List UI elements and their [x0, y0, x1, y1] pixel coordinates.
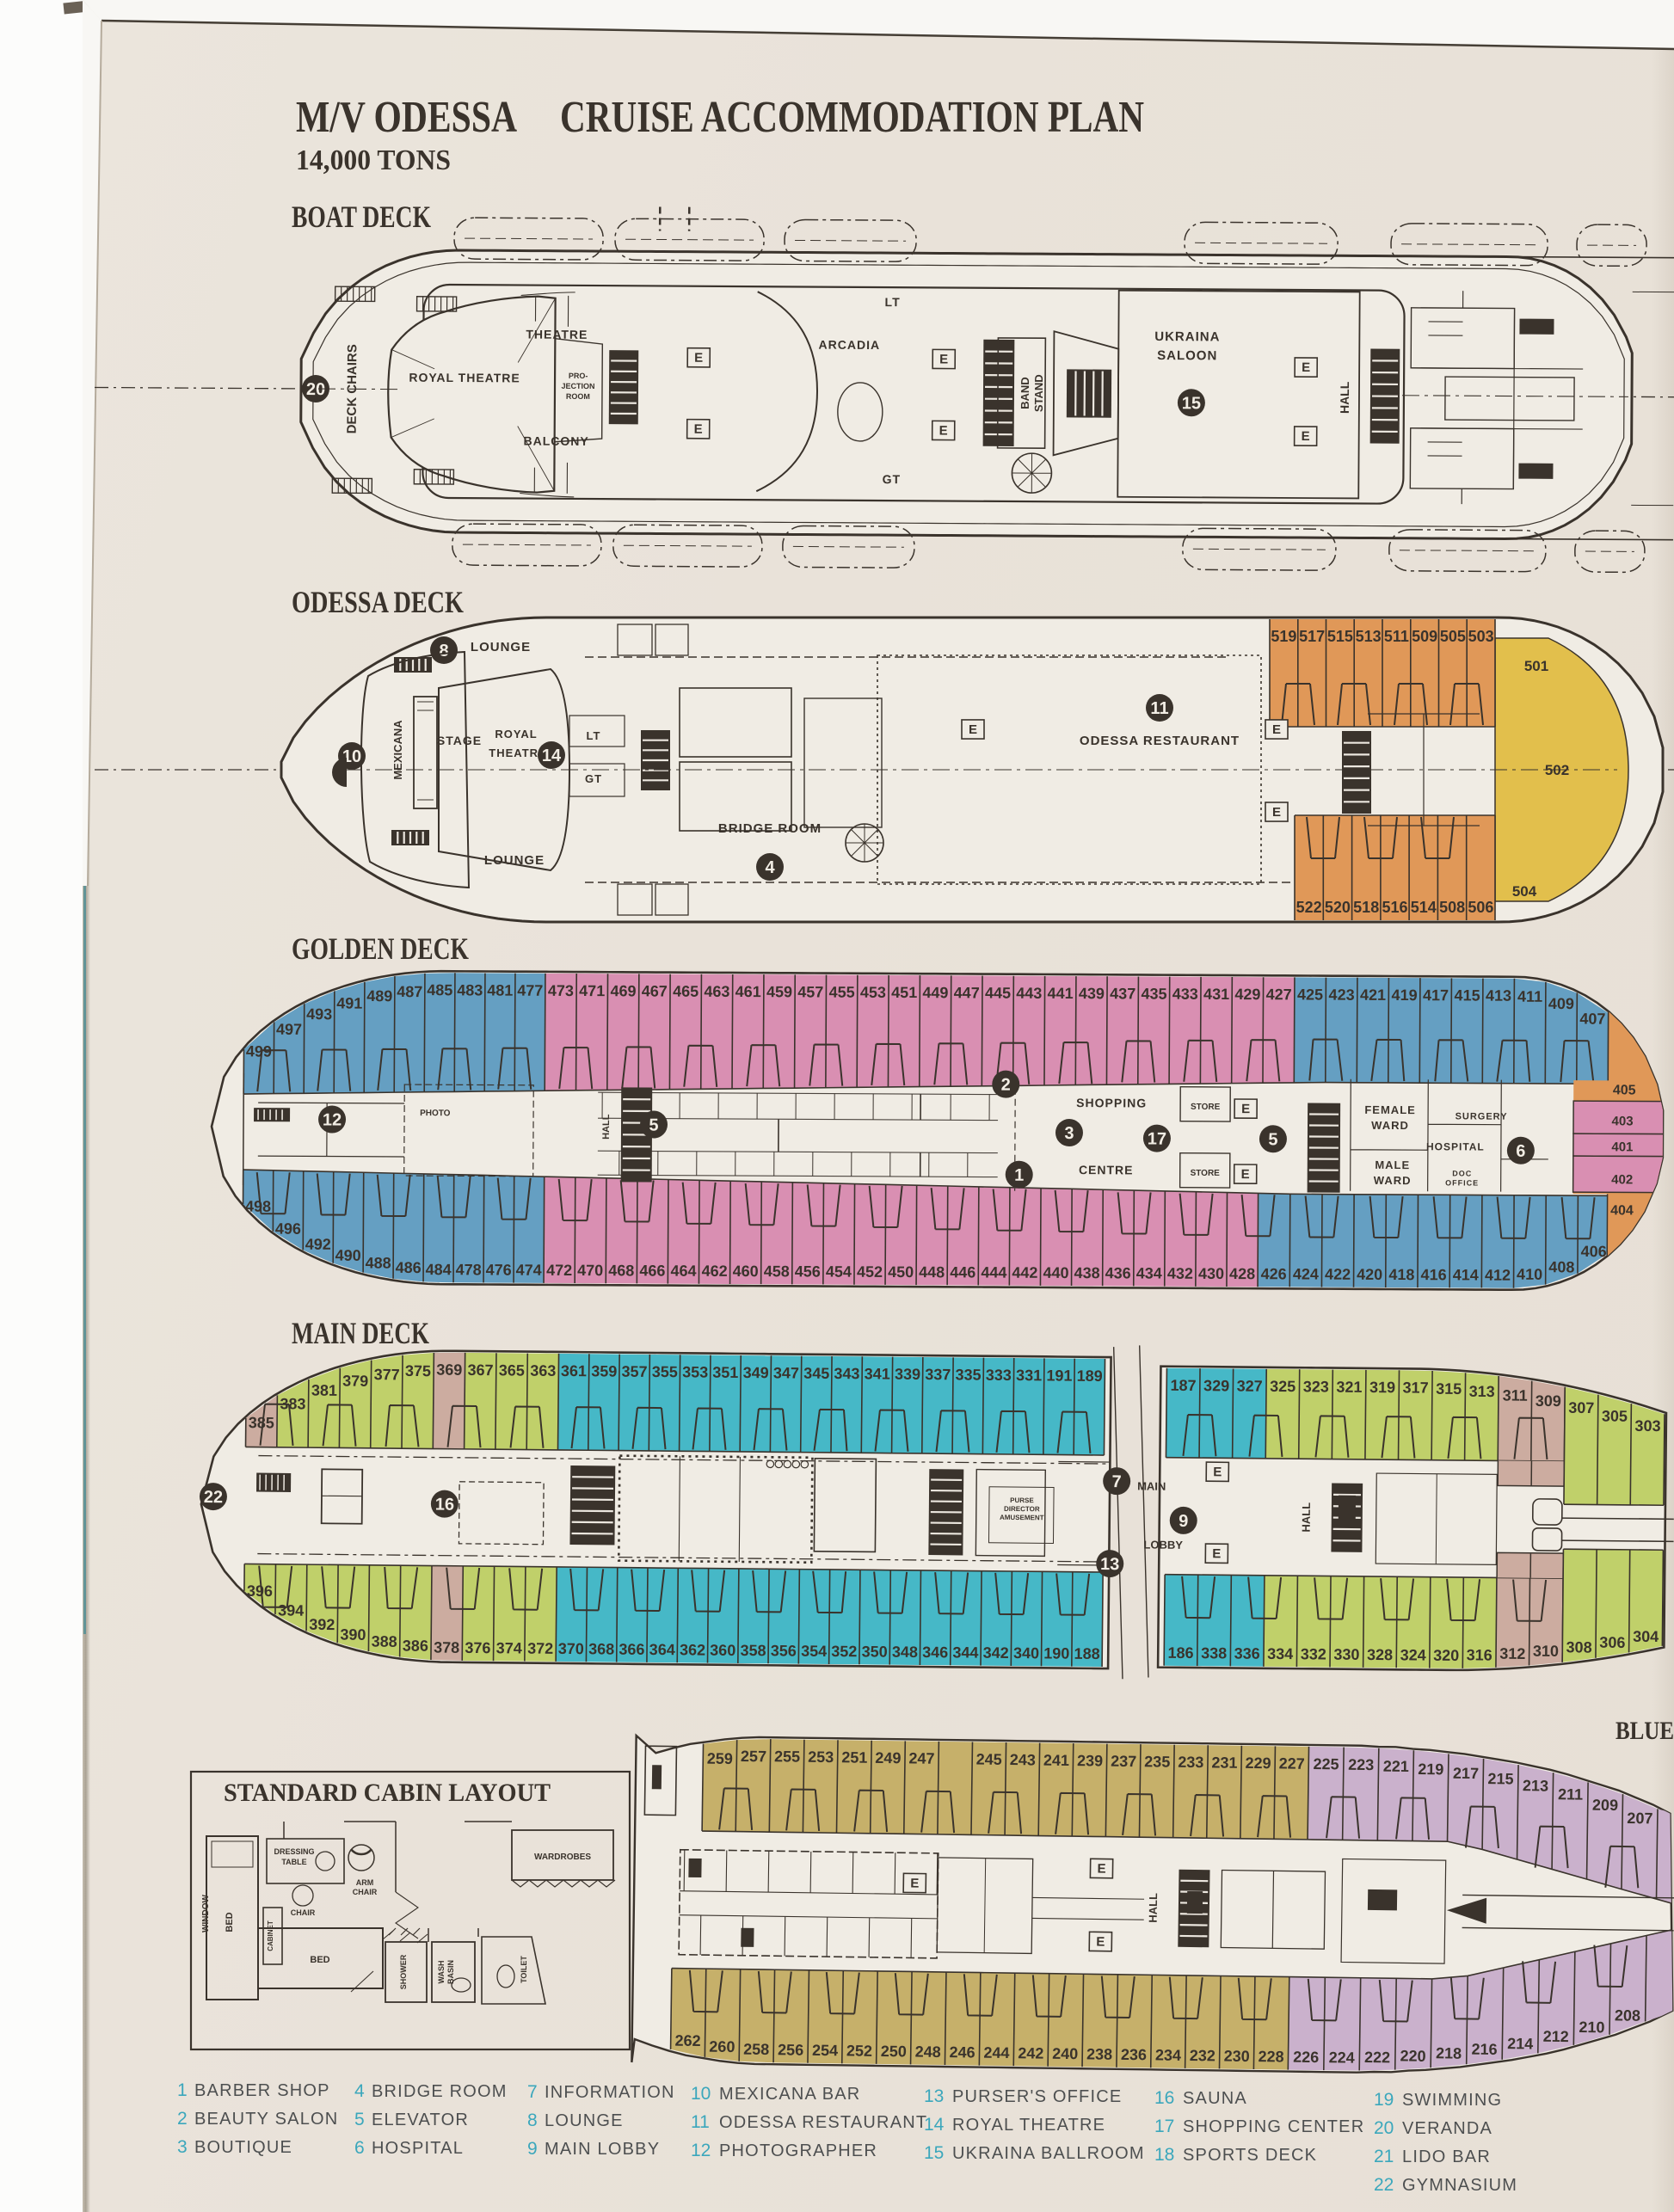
svg-text:309: 309 — [1536, 1392, 1561, 1410]
svg-text:313: 313 — [1469, 1383, 1495, 1400]
svg-text:14,000 TONS: 14,000 TONS — [296, 144, 451, 176]
svg-text:372: 372 — [527, 1640, 553, 1657]
svg-text:310: 310 — [1533, 1643, 1559, 1660]
svg-text:472: 472 — [546, 1262, 572, 1279]
svg-text:12: 12 — [691, 2141, 711, 2160]
svg-text:438: 438 — [1074, 1264, 1100, 1281]
svg-text:231: 231 — [1211, 1754, 1237, 1771]
svg-text:216: 216 — [1471, 2041, 1497, 2058]
svg-text:UKRAINA: UKRAINA — [1154, 329, 1220, 344]
svg-text:5: 5 — [354, 2110, 365, 2129]
svg-text:423: 423 — [1329, 986, 1355, 1004]
svg-text:329: 329 — [1203, 1377, 1229, 1394]
svg-text:424: 424 — [1293, 1265, 1319, 1282]
svg-text:520: 520 — [1325, 899, 1351, 916]
svg-text:471: 471 — [579, 982, 605, 999]
svg-text:375: 375 — [405, 1362, 431, 1379]
svg-text:13: 13 — [924, 2086, 944, 2106]
svg-text:416: 416 — [1421, 1266, 1447, 1283]
svg-text:E: E — [1213, 1465, 1222, 1479]
svg-text:3: 3 — [177, 2137, 188, 2157]
svg-text:488: 488 — [366, 1254, 391, 1271]
svg-text:434: 434 — [1136, 1264, 1162, 1281]
svg-text:226: 226 — [1293, 2049, 1319, 2066]
svg-text:444: 444 — [981, 1264, 1006, 1281]
svg-text:492: 492 — [305, 1236, 331, 1253]
svg-text:218: 218 — [1436, 2044, 1462, 2061]
svg-text:22: 22 — [204, 1488, 223, 1507]
svg-text:189: 189 — [1077, 1367, 1103, 1385]
svg-text:429: 429 — [1234, 986, 1260, 1003]
svg-text:303: 303 — [1634, 1417, 1660, 1435]
svg-text:232: 232 — [1190, 2047, 1215, 2064]
svg-text:CENTRE: CENTRE — [1079, 1163, 1134, 1177]
svg-text:9: 9 — [527, 2139, 538, 2159]
svg-text:456: 456 — [795, 1263, 821, 1280]
svg-text:21: 21 — [1374, 2147, 1394, 2166]
svg-text:BRIDGE ROOM: BRIDGE ROOM — [372, 2082, 508, 2101]
svg-text:509: 509 — [1412, 628, 1437, 645]
svg-text:247: 247 — [908, 1749, 934, 1767]
svg-text:BOUTIQUE: BOUTIQUE — [194, 2138, 292, 2157]
svg-text:BEAUTY SALON: BEAUTY SALON — [194, 2110, 338, 2129]
svg-text:8: 8 — [527, 2111, 538, 2130]
svg-text:476: 476 — [486, 1261, 512, 1278]
svg-text:357: 357 — [621, 1363, 647, 1380]
svg-text:435: 435 — [1141, 985, 1166, 1002]
svg-text:237: 237 — [1111, 1753, 1136, 1770]
svg-text:214: 214 — [1507, 2035, 1533, 2052]
svg-text:408: 408 — [1548, 1258, 1574, 1275]
svg-text:DOC: DOC — [1452, 1169, 1472, 1177]
svg-text:JECTION: JECTION — [561, 382, 594, 390]
svg-text:355: 355 — [652, 1363, 678, 1380]
svg-text:MAIN LOBBY: MAIN LOBBY — [545, 2140, 660, 2159]
svg-text:513: 513 — [1356, 628, 1382, 645]
svg-text:440: 440 — [1043, 1264, 1068, 1281]
svg-text:257: 257 — [741, 1748, 766, 1765]
svg-text:367: 367 — [467, 1361, 493, 1379]
svg-text:250: 250 — [881, 2043, 907, 2060]
svg-text:239: 239 — [1077, 1752, 1103, 1769]
svg-text:SAUNA: SAUNA — [1183, 2089, 1247, 2108]
svg-text:497: 497 — [276, 1021, 302, 1038]
svg-text:518: 518 — [1353, 899, 1379, 916]
svg-text:458: 458 — [764, 1263, 790, 1280]
svg-text:490: 490 — [335, 1247, 361, 1264]
svg-text:411: 411 — [1517, 988, 1542, 1005]
svg-text:LOUNGE: LOUNGE — [545, 2111, 624, 2130]
svg-text:8: 8 — [439, 642, 448, 661]
svg-text:248: 248 — [915, 2043, 941, 2061]
svg-text:459: 459 — [766, 983, 792, 1000]
svg-text:16: 16 — [1154, 2088, 1174, 2108]
svg-text:491: 491 — [336, 994, 362, 1011]
svg-text:414: 414 — [1453, 1266, 1479, 1283]
svg-text:ODESSA RESTAURANT: ODESSA RESTAURANT — [719, 2113, 927, 2132]
svg-text:STAND: STAND — [1032, 374, 1045, 412]
svg-text:353: 353 — [682, 1363, 708, 1380]
svg-text:454: 454 — [826, 1263, 852, 1281]
svg-text:316: 316 — [1467, 1646, 1492, 1663]
svg-text:BLUE: BLUE — [1616, 1717, 1674, 1745]
svg-text:332: 332 — [1301, 1645, 1326, 1662]
svg-text:481: 481 — [487, 981, 513, 998]
svg-text:328: 328 — [1367, 1646, 1393, 1663]
svg-text:2: 2 — [1001, 1076, 1011, 1095]
svg-text:461: 461 — [735, 983, 761, 1000]
svg-text:MAIN DECK: MAIN DECK — [292, 1316, 429, 1350]
svg-text:468: 468 — [608, 1262, 634, 1279]
svg-text:243: 243 — [1010, 1751, 1036, 1768]
svg-text:485: 485 — [427, 981, 452, 998]
svg-text:330: 330 — [1333, 1646, 1359, 1663]
svg-text:403: 403 — [1611, 1114, 1633, 1128]
svg-text:246: 246 — [949, 2043, 975, 2061]
svg-text:191: 191 — [1046, 1367, 1072, 1384]
svg-text:INFORMATION: INFORMATION — [545, 2083, 675, 2102]
svg-text:20: 20 — [1374, 2118, 1394, 2138]
svg-text:4: 4 — [354, 2081, 365, 2101]
svg-text:419: 419 — [1392, 986, 1418, 1004]
svg-text:6: 6 — [1516, 1142, 1525, 1161]
svg-text:4: 4 — [765, 858, 775, 877]
svg-text:325: 325 — [1270, 1378, 1296, 1395]
svg-text:187: 187 — [1170, 1377, 1196, 1394]
svg-text:505: 505 — [1440, 628, 1466, 645]
svg-text:BAND: BAND — [1019, 377, 1031, 409]
svg-text:E: E — [939, 423, 948, 438]
svg-text:221: 221 — [1383, 1758, 1409, 1775]
svg-text:M/V ODESSA: M/V ODESSA — [296, 93, 517, 142]
svg-text:427: 427 — [1266, 986, 1292, 1003]
svg-text:362: 362 — [680, 1641, 705, 1658]
svg-text:252: 252 — [846, 2042, 872, 2059]
svg-text:1: 1 — [1014, 1166, 1024, 1185]
svg-text:230: 230 — [1224, 2048, 1250, 2065]
svg-text:BASIN: BASIN — [446, 1960, 455, 1984]
svg-text:447: 447 — [954, 984, 980, 1001]
svg-text:346: 346 — [922, 1644, 948, 1661]
svg-text:5: 5 — [1268, 1130, 1277, 1149]
svg-text:448: 448 — [919, 1263, 945, 1281]
svg-text:E: E — [1272, 722, 1281, 737]
svg-text:E: E — [1097, 1861, 1105, 1876]
svg-text:365: 365 — [499, 1361, 525, 1379]
svg-text:356: 356 — [771, 1642, 797, 1659]
svg-text:368: 368 — [588, 1640, 614, 1657]
svg-text:259: 259 — [707, 1750, 733, 1767]
svg-text:MALE: MALE — [1375, 1158, 1410, 1171]
svg-text:331: 331 — [1016, 1367, 1042, 1384]
svg-text:377: 377 — [374, 1366, 400, 1383]
svg-text:18: 18 — [1154, 2145, 1174, 2165]
svg-text:E: E — [939, 352, 948, 366]
svg-text:DIRECTOR: DIRECTOR — [1004, 1505, 1040, 1513]
svg-text:320: 320 — [1433, 1647, 1459, 1664]
svg-text:499: 499 — [246, 1042, 272, 1060]
svg-text:227: 227 — [1279, 1754, 1305, 1772]
svg-text:HALL: HALL — [1300, 1502, 1313, 1533]
svg-text:PRO-: PRO- — [569, 372, 588, 380]
svg-text:219: 219 — [1418, 1760, 1443, 1778]
svg-text:BRIDGE ROOM: BRIDGE ROOM — [718, 821, 822, 836]
svg-text:359: 359 — [591, 1362, 617, 1379]
svg-text:340: 340 — [1013, 1644, 1039, 1662]
svg-text:7: 7 — [527, 2082, 538, 2102]
svg-text:9: 9 — [1179, 1512, 1188, 1531]
svg-text:14: 14 — [542, 747, 562, 765]
svg-text:E: E — [1272, 805, 1281, 820]
svg-text:ROYAL: ROYAL — [495, 728, 537, 740]
svg-text:334: 334 — [1267, 1645, 1293, 1662]
svg-text:19: 19 — [1374, 2090, 1394, 2110]
svg-text:379: 379 — [342, 1373, 368, 1390]
svg-text:517: 517 — [1299, 628, 1325, 645]
svg-text:319: 319 — [1369, 1379, 1395, 1396]
svg-text:378: 378 — [434, 1639, 459, 1656]
svg-text:STORE: STORE — [1191, 1169, 1221, 1178]
svg-text:354: 354 — [801, 1643, 827, 1660]
svg-text:466: 466 — [639, 1262, 665, 1279]
svg-text:335: 335 — [955, 1366, 981, 1383]
svg-text:431: 431 — [1203, 986, 1229, 1003]
svg-text:324: 324 — [1400, 1646, 1426, 1663]
svg-text:236: 236 — [1121, 2046, 1147, 2063]
svg-text:360: 360 — [710, 1642, 735, 1659]
svg-text:511: 511 — [1384, 628, 1409, 645]
svg-text:407: 407 — [1579, 1011, 1605, 1028]
svg-text:514: 514 — [1411, 899, 1437, 916]
svg-text:469: 469 — [610, 982, 636, 999]
svg-text:17: 17 — [1154, 2117, 1174, 2136]
svg-text:262: 262 — [674, 2032, 700, 2049]
svg-text:341: 341 — [865, 1365, 890, 1382]
svg-text:E: E — [1212, 1546, 1221, 1561]
svg-text:ELEVATOR: ELEVATOR — [372, 2111, 469, 2129]
svg-text:14: 14 — [924, 2115, 945, 2135]
svg-text:441: 441 — [1048, 985, 1074, 1002]
svg-text:338: 338 — [1201, 1644, 1227, 1662]
svg-text:404: 404 — [1610, 1203, 1634, 1218]
svg-text:217: 217 — [1453, 1765, 1479, 1782]
svg-text:188: 188 — [1074, 1645, 1100, 1662]
svg-text:464: 464 — [670, 1263, 696, 1280]
svg-text:420: 420 — [1357, 1266, 1382, 1283]
svg-text:433: 433 — [1172, 986, 1198, 1003]
svg-text:245: 245 — [976, 1750, 1002, 1767]
svg-text:467: 467 — [642, 982, 668, 999]
svg-text:321: 321 — [1336, 1379, 1362, 1396]
svg-text:361: 361 — [561, 1362, 587, 1379]
svg-text:MAIN: MAIN — [1137, 1479, 1166, 1492]
svg-text:337: 337 — [925, 1366, 951, 1383]
svg-text:421: 421 — [1360, 986, 1386, 1004]
svg-text:351: 351 — [712, 1364, 738, 1381]
svg-text:AMUSEMENT: AMUSEMENT — [1000, 1514, 1044, 1521]
svg-text:306: 306 — [1599, 1634, 1625, 1651]
svg-text:LOBBY: LOBBY — [1143, 1538, 1183, 1551]
svg-text:238: 238 — [1086, 2045, 1112, 2062]
svg-text:5: 5 — [649, 1115, 658, 1134]
svg-text:WARDROBES: WARDROBES — [534, 1853, 591, 1862]
svg-text:312: 312 — [1499, 1645, 1525, 1662]
svg-text:452: 452 — [857, 1263, 883, 1281]
svg-text:STAGE: STAGE — [437, 734, 482, 747]
svg-text:15: 15 — [924, 2143, 944, 2163]
svg-text:BALCONY: BALCONY — [523, 434, 588, 448]
svg-text:425: 425 — [1297, 986, 1323, 1003]
svg-text:484: 484 — [426, 1261, 452, 1278]
svg-text:DRESSING: DRESSING — [274, 1847, 314, 1856]
svg-text:ARM: ARM — [356, 1878, 374, 1887]
svg-text:413: 413 — [1486, 987, 1511, 1005]
svg-text:10: 10 — [691, 2084, 711, 2104]
svg-text:208: 208 — [1615, 2006, 1640, 2024]
svg-text:396: 396 — [247, 1582, 273, 1600]
svg-text:215: 215 — [1487, 1770, 1513, 1787]
svg-text:224: 224 — [1329, 2049, 1355, 2066]
svg-text:376: 376 — [465, 1639, 490, 1656]
svg-text:GT: GT — [883, 472, 902, 486]
svg-text:493: 493 — [306, 1005, 332, 1023]
svg-text:437: 437 — [1110, 985, 1135, 1002]
svg-text:474: 474 — [516, 1262, 542, 1279]
svg-text:311: 311 — [1503, 1386, 1528, 1404]
svg-text:343: 343 — [834, 1365, 859, 1382]
svg-text:515: 515 — [1327, 628, 1353, 645]
svg-text:446: 446 — [950, 1263, 975, 1281]
svg-text:432: 432 — [1167, 1265, 1193, 1282]
svg-text:213: 213 — [1523, 1777, 1548, 1794]
svg-text:FEMALE: FEMALE — [1364, 1103, 1416, 1116]
svg-text:STORE: STORE — [1191, 1103, 1221, 1112]
svg-text:229: 229 — [1245, 1754, 1271, 1772]
svg-text:478: 478 — [456, 1261, 482, 1278]
svg-text:496: 496 — [275, 1220, 301, 1238]
svg-text:443: 443 — [1016, 985, 1042, 1002]
svg-text:15: 15 — [1182, 394, 1201, 413]
svg-text:255: 255 — [774, 1748, 800, 1765]
svg-text:358: 358 — [740, 1642, 766, 1659]
svg-text:HALL: HALL — [1147, 1893, 1160, 1923]
svg-text:E: E — [969, 722, 977, 737]
svg-text:453: 453 — [860, 984, 886, 1001]
svg-text:209: 209 — [1592, 1797, 1618, 1814]
svg-text:11: 11 — [1150, 699, 1168, 718]
svg-text:508: 508 — [1439, 899, 1465, 916]
svg-text:462: 462 — [702, 1263, 728, 1280]
svg-text:506: 506 — [1468, 899, 1493, 916]
svg-text:ODESSA DECK: ODESSA DECK — [292, 585, 464, 619]
svg-text:394: 394 — [278, 1601, 304, 1619]
svg-text:22: 22 — [1374, 2175, 1394, 2195]
svg-text:BED: BED — [310, 1955, 329, 1965]
svg-text:483: 483 — [457, 981, 483, 998]
svg-text:E: E — [1302, 360, 1310, 375]
svg-text:409: 409 — [1548, 995, 1574, 1012]
svg-text:ROYAL THEATRE: ROYAL THEATRE — [952, 2116, 1105, 2135]
svg-text:256: 256 — [778, 2041, 803, 2058]
svg-text:207: 207 — [1627, 1810, 1652, 1827]
svg-text:HOSPITAL: HOSPITAL — [1426, 1140, 1485, 1152]
svg-text:PHOTO: PHOTO — [420, 1109, 451, 1118]
svg-text:516: 516 — [1382, 899, 1407, 916]
svg-text:388: 388 — [372, 1633, 397, 1650]
svg-text:477: 477 — [517, 982, 543, 999]
svg-text:E: E — [694, 422, 703, 437]
svg-text:GT: GT — [585, 772, 602, 785]
svg-text:317: 317 — [1403, 1379, 1429, 1396]
svg-text:342: 342 — [983, 1644, 1009, 1662]
svg-text:244: 244 — [983, 2044, 1009, 2061]
svg-text:13: 13 — [1100, 1555, 1119, 1574]
svg-text:WARD: WARD — [1371, 1119, 1409, 1132]
svg-text:222: 222 — [1364, 2049, 1390, 2066]
svg-text:11: 11 — [691, 2112, 710, 2132]
svg-text:E: E — [694, 351, 703, 366]
svg-text:ROOM: ROOM — [566, 392, 590, 401]
svg-text:260: 260 — [709, 2038, 735, 2055]
svg-text:428: 428 — [1229, 1265, 1255, 1282]
svg-text:336: 336 — [1234, 1644, 1260, 1662]
svg-text:2: 2 — [177, 2109, 188, 2129]
svg-text:366: 366 — [619, 1641, 644, 1658]
svg-text:442: 442 — [1012, 1264, 1037, 1281]
svg-text:350: 350 — [862, 1643, 888, 1660]
svg-text:ROYAL THEATRE: ROYAL THEATRE — [409, 371, 520, 385]
svg-text:BOAT DECK: BOAT DECK — [292, 200, 431, 234]
svg-text:CHAIR: CHAIR — [291, 1908, 316, 1917]
svg-text:MEXICANA: MEXICANA — [391, 720, 404, 780]
svg-text:SURGERY: SURGERY — [1456, 1111, 1508, 1121]
svg-text:E: E — [1241, 1102, 1250, 1116]
svg-text:210: 210 — [1579, 2018, 1604, 2036]
svg-text:HALL: HALL — [1338, 381, 1351, 414]
svg-text:465: 465 — [673, 983, 699, 1000]
svg-text:401: 401 — [1611, 1140, 1633, 1154]
svg-text:20: 20 — [306, 380, 325, 399]
svg-text:212: 212 — [1543, 2028, 1569, 2045]
svg-text:439: 439 — [1079, 985, 1105, 1002]
svg-text:186: 186 — [1167, 1644, 1193, 1662]
svg-text:349: 349 — [743, 1364, 769, 1381]
svg-text:405: 405 — [1613, 1083, 1636, 1097]
svg-text:228: 228 — [1258, 2048, 1283, 2065]
svg-text:489: 489 — [366, 987, 392, 1005]
svg-text:SPORTS DECK: SPORTS DECK — [1183, 2146, 1317, 2165]
svg-text:307: 307 — [1568, 1399, 1594, 1416]
svg-text:12: 12 — [323, 1110, 342, 1129]
svg-text:315: 315 — [1436, 1380, 1462, 1398]
svg-text:430: 430 — [1198, 1265, 1224, 1282]
svg-text:450: 450 — [888, 1263, 914, 1281]
svg-text:333: 333 — [986, 1367, 1012, 1384]
svg-text:240: 240 — [1052, 2045, 1078, 2062]
svg-text:234: 234 — [1155, 2046, 1181, 2063]
svg-text:254: 254 — [812, 2042, 838, 2059]
svg-text:SHOWER: SHOWER — [399, 1954, 408, 1989]
svg-text:249: 249 — [875, 1749, 901, 1767]
svg-text:220: 220 — [1400, 2047, 1425, 2064]
svg-text:418: 418 — [1388, 1266, 1414, 1283]
svg-text:TABLE: TABLE — [281, 1858, 306, 1866]
svg-text:347: 347 — [773, 1364, 799, 1381]
svg-text:223: 223 — [1348, 1756, 1374, 1773]
svg-text:451: 451 — [891, 984, 917, 1001]
svg-text:17: 17 — [1148, 1130, 1166, 1149]
svg-text:E: E — [1241, 1167, 1250, 1182]
